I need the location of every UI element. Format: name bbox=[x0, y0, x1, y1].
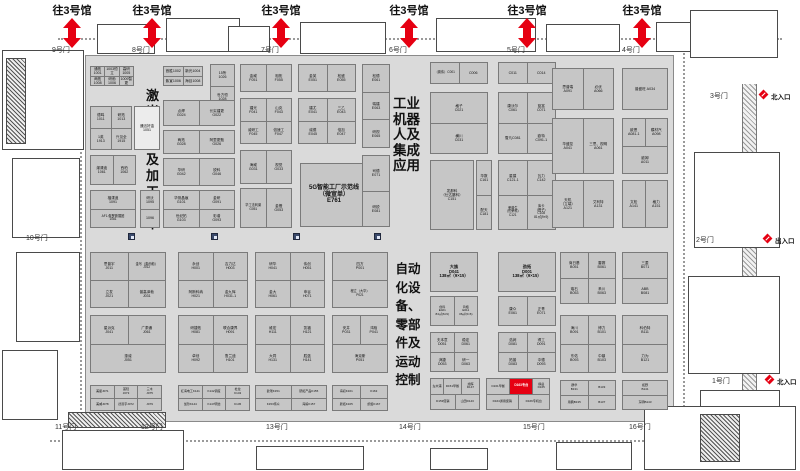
booth-cell: 欧特 C091-1 bbox=[528, 124, 556, 154]
booth-cell: 普盛旺 A034 bbox=[623, 69, 667, 109]
booth-cell: 三木 J075 bbox=[138, 386, 161, 398]
to-hall3-label: 往3号馆 bbox=[616, 2, 668, 18]
booth-cell: 1009智更 bbox=[120, 77, 133, 86]
gate-label: 13号门 bbox=[266, 422, 288, 432]
booth-cell: 两拓1008 bbox=[91, 77, 104, 86]
gate-label: 16号门 bbox=[629, 422, 651, 432]
booth-cell: 大族 D041 138㎡（9×15） bbox=[431, 253, 477, 291]
to-hall3-arrow-icon bbox=[400, 18, 418, 48]
booth-block: 镭光 F041山克 F043诚研工 F045倍速工 F047 bbox=[240, 98, 292, 144]
booth-cell: 群华 B131 bbox=[561, 381, 588, 395]
building bbox=[16, 252, 80, 342]
booth-block: 三菱 B071ABB B081 bbox=[622, 252, 668, 304]
booth-block: 研捷拓 H081联合康界 H091卓划 H092鲁兰迪 H101 bbox=[178, 315, 248, 373]
booth-cell: 拓普 D083 bbox=[499, 353, 527, 372]
booth-cell: 新光1004 bbox=[184, 67, 203, 76]
booth-cell: 紫宣1006 bbox=[164, 77, 183, 86]
booth-cell: 模材汽 A098 bbox=[646, 119, 668, 146]
gate-label: 1号门 bbox=[712, 376, 730, 386]
building bbox=[300, 22, 386, 54]
booth-cell: 库卡 （橙子） C108 81㎡(9×9) bbox=[528, 196, 556, 230]
booth-block: 永创 H001吉力达 H003阿斯科纳 H021金九辉 H031-1 bbox=[178, 252, 248, 308]
booth-cell: 煤清迪 1061 bbox=[91, 156, 113, 184]
booth-block: 点焊 G024长实镭更 G022 bbox=[163, 100, 235, 126]
booth-cell: 通拓1001 bbox=[91, 67, 104, 76]
booth-cell: 夫本意 D051 bbox=[431, 333, 454, 352]
booth-cell: 相拓 F055 bbox=[267, 65, 292, 91]
booth-cell: 1003恒立 bbox=[105, 67, 118, 76]
marker-dot bbox=[296, 236, 299, 239]
gate-label: 2号门 bbox=[696, 235, 714, 245]
booth-block: 华测晶痕 G101金研 G091世纪拓 G103彩谱 G093 bbox=[163, 190, 235, 228]
booth-block: 康众 E061正青 E071 bbox=[498, 296, 556, 326]
booth-block: 研沃 10951096 bbox=[140, 190, 160, 228]
booth-cell: 华盛控 A041 bbox=[553, 119, 583, 173]
marker-dot bbox=[131, 236, 134, 239]
booth-cell: 首胜1002 bbox=[164, 67, 183, 76]
building bbox=[2, 350, 58, 420]
booth-cell: 伟创 H051 bbox=[291, 253, 325, 280]
booth-block: 德鸣 1011研拓 10131英 1913兴见全 1915 bbox=[90, 106, 132, 150]
building bbox=[6, 58, 26, 144]
booth-cell: 惠诚 J051 bbox=[91, 345, 165, 373]
gate-label: 3号门 bbox=[710, 91, 728, 101]
gate-label: 5号门 bbox=[507, 45, 525, 55]
booth-block: 夫本意 D051稳定 D061湃捷 D053研一 D063 bbox=[430, 332, 478, 372]
booth-cell: 鸿栢 P041 bbox=[361, 316, 388, 344]
booth-cell: 东明B143 bbox=[623, 396, 667, 410]
booth-block: 四方 P001程立（大华） P021 bbox=[332, 252, 388, 308]
booth-cell: 松德 E061 bbox=[363, 65, 389, 92]
booth-cell: 彩谱 G093 bbox=[200, 210, 235, 228]
section-title-automation: 自动化设备、零部件及运动控制 bbox=[394, 260, 422, 390]
booth-cell: 浩润 D081 bbox=[499, 333, 527, 352]
marker-dot bbox=[214, 236, 217, 239]
entrance-diamond-icon bbox=[765, 375, 775, 385]
booth-cell: 安井 P031 bbox=[333, 316, 360, 344]
building bbox=[256, 446, 364, 470]
section-title-robots: 工业机器人及集成应用 bbox=[391, 96, 422, 174]
right-corridor-wall bbox=[683, 42, 685, 442]
booth-cell: 旭辉 D147 bbox=[462, 379, 479, 394]
booth-cell: 诚德 E045 bbox=[299, 122, 327, 144]
booth-block: 海初K161K163默拓K165凯旋K167 bbox=[332, 385, 388, 411]
booth-cell: 雷赛 B061 bbox=[589, 253, 616, 278]
booth-cell: 欧姆 A011 bbox=[623, 147, 667, 174]
booth-cell: 普高泽勃 J031 bbox=[129, 281, 166, 308]
booth-block: 商日基 B051雷赛 B061珞石 B053禾川 B063 bbox=[560, 252, 616, 304]
to-hall3-arrow-icon bbox=[518, 18, 536, 48]
booth-cell: J079 bbox=[138, 399, 161, 411]
booth-cell: 中德 D093 bbox=[528, 353, 556, 372]
booth-cell: 必优 A066 bbox=[584, 69, 614, 109]
booth-cell: 金大 H061 bbox=[256, 281, 290, 308]
booth-cell: 横川 C031 bbox=[431, 124, 487, 154]
booth-block: 华盛控 A041三思、视明 A061 bbox=[552, 118, 614, 174]
booth-cell: K142调度 bbox=[203, 386, 226, 398]
booth-cell: K145 bbox=[226, 399, 249, 411]
booth-cell: 星派克 J041 bbox=[91, 316, 128, 344]
booth-cell: 联合康界 H091 bbox=[214, 316, 248, 344]
booth-cell: 劲拓 D001 138㎡（9×15） bbox=[499, 253, 555, 291]
booth-cell: 鸿栢 E011 36㎡(6×6) bbox=[455, 297, 478, 325]
booth-cell: 爱普生 （长荣科） C121 bbox=[499, 196, 527, 230]
booth-cell: 加玲K144 bbox=[179, 399, 202, 411]
gate-label: 14号门 bbox=[399, 422, 421, 432]
booth-block: D161早餐D163专台横岳 D165D164通用促销D166专机台 bbox=[486, 378, 550, 410]
booth-cell: 兴见全 1915 bbox=[112, 129, 132, 150]
booth-block: 海川 B091博力 B101东佑 B093中鼎 B103 bbox=[560, 315, 616, 373]
booth-cell: 海目1008 bbox=[184, 77, 203, 86]
booth-block: 通拓10011003恒立高研1005两拓1008研勃10061009智更 bbox=[90, 66, 134, 86]
booth-cell: 得工 D091 bbox=[528, 333, 556, 352]
booth-cell: 金英 E051 bbox=[299, 65, 327, 91]
booth-cell: K153伟众 bbox=[256, 399, 291, 411]
booth-cell: 康沃尔 C061 bbox=[499, 93, 527, 123]
booth-cell: 司德 E071 bbox=[363, 156, 389, 191]
booth-cell: 研沃 1095 bbox=[141, 191, 159, 209]
to-hall3-label: 往3号馆 bbox=[126, 2, 178, 18]
booth-cell: ABB B081 bbox=[623, 279, 667, 304]
booth-cell: 横岳 D165 bbox=[533, 379, 549, 394]
booth-cell: 金橙 G053 bbox=[267, 189, 292, 227]
booth-cell: 研勃1006 bbox=[105, 77, 118, 86]
booth-cell: C014 bbox=[528, 63, 556, 83]
booth-block: 文松 A141格力 A151 bbox=[622, 180, 668, 228]
booth-block: 康沃尔 C061蓝富 C071雪凡C081欧特 C091-1 bbox=[498, 92, 556, 154]
booth-block: 镭尤 E041三乙 E043诚德 E045倍加 E047 bbox=[298, 98, 356, 144]
booth-cell: 广泰通 J061 bbox=[129, 316, 166, 344]
booth-cell: 左木浦 bbox=[431, 379, 443, 394]
booth-cell: 力为 B121 bbox=[623, 345, 667, 373]
booth-cell: 阿里更甄 G026 bbox=[200, 131, 235, 153]
booth-cell: 通迅好金 1051 bbox=[135, 107, 159, 149]
booth-cell: 金写（泰丙勃） J012 bbox=[129, 253, 166, 280]
booth-cell: 凯旋K167 bbox=[361, 399, 388, 411]
booth-cell: 华研 G042 bbox=[164, 159, 199, 185]
to-hall3-arrow-icon bbox=[143, 18, 161, 48]
booth-cell: 福漾迪 1091 bbox=[91, 191, 135, 209]
booth-cell: 拓野 B141 bbox=[623, 381, 667, 395]
booth-block: 浩润 D081得工 D091拓普 D083中德 D093 bbox=[498, 332, 556, 372]
booth-cell: 视觉 G033 bbox=[267, 151, 292, 183]
booth-cell: 美星J071 bbox=[91, 386, 114, 398]
booth-cell: 华工法利莱 G051 bbox=[241, 189, 266, 227]
booth-cell: 华测晶痕 G101 bbox=[164, 191, 199, 209]
booth-block: 拓野 B141东明B143 bbox=[622, 380, 668, 410]
booth-cell: D161早餐 bbox=[487, 379, 509, 394]
booth-cell: D151早餐 bbox=[444, 379, 461, 394]
booth-cell: 研拓产品K155 bbox=[292, 386, 327, 398]
booth-cell: 维宏 H111 bbox=[256, 316, 290, 344]
booth-cell: 凯福 H121 bbox=[291, 316, 325, 344]
booth-block: 左木浦D151早餐旭辉 D147D153促销山田D143 bbox=[430, 378, 480, 410]
booth-block: 红海电工K141K142调度杜拉 K143加玲K144K147明治K145 bbox=[178, 385, 250, 411]
booth-cell: D163专台 bbox=[510, 379, 532, 394]
booth-cell: 两拓 G028 bbox=[164, 131, 199, 153]
gate-label: 11号门 bbox=[55, 422, 76, 432]
booth-cell: 15所 1026 bbox=[211, 65, 234, 86]
booth-block: 福漾迪 1091AF1.俄罗斯展团 1081 bbox=[90, 190, 136, 228]
booth-cell: C006 bbox=[460, 63, 488, 83]
booth-block: 天机 （立端） A121艾利特 A131 bbox=[552, 180, 614, 228]
aisle-info-marker bbox=[211, 233, 218, 240]
gate-label: 12号门 bbox=[141, 422, 163, 432]
booth-cell: 文松 A141 bbox=[623, 181, 645, 227]
booth-block: 研华 H041伟创 H051金大 H061申谷 H071 bbox=[255, 252, 325, 308]
booth-cell: 杜拉 K143 bbox=[226, 386, 249, 398]
booth-cell: 点焊 G024 bbox=[164, 101, 199, 125]
gate-label: 7号门 bbox=[261, 45, 279, 55]
booth-cell: 默拓K165 bbox=[333, 399, 360, 411]
booth-cell: 创科 E021 84㎡(6×9) bbox=[431, 297, 454, 325]
exhibition-floor-plan: 激光设备及加工技术 工业机器人及集成应用 自动化设备、零部件及运动控制 通拓10… bbox=[0, 0, 800, 471]
booth-cell: 中鼎 B103 bbox=[589, 345, 616, 373]
booth-block: （置伟）C001C006 bbox=[430, 62, 488, 84]
gate-label: 15号门 bbox=[523, 422, 545, 432]
booth-cell: 四方 P001 bbox=[333, 253, 387, 280]
booth-cell: 世纪拓 G103 bbox=[164, 210, 199, 228]
diamond-slit bbox=[765, 236, 769, 240]
booth-cell: 诚研工 F045 bbox=[241, 122, 266, 144]
booth-block: 创科 E021 84㎡(6×9)鸿栢 E011 36㎡(6×6) bbox=[430, 296, 478, 326]
building bbox=[546, 24, 620, 52]
booth-cell: 博力 B101 bbox=[589, 316, 616, 344]
booth-block: 5G智能工厂示范线 （微宣单） E761 bbox=[300, 163, 368, 227]
booth-block: 华研 G042锐科 G046 bbox=[163, 158, 235, 186]
booth-cell: 倍加 E047 bbox=[328, 122, 356, 144]
booth-cell: 配天 C181 bbox=[477, 196, 491, 230]
booth-cell: 蓝富 C071 bbox=[528, 93, 556, 123]
booth-cell: 研拓 1013 bbox=[112, 107, 132, 128]
gate-label: 8号门 bbox=[132, 45, 150, 55]
booth-block: 安井 P031鸿栢 P041海克斯 P051 bbox=[332, 315, 388, 373]
aisle-info-marker bbox=[128, 233, 135, 240]
entrance-label: 北入口 bbox=[777, 376, 797, 386]
booth-cell: 欧恩 A081-1 bbox=[623, 119, 645, 146]
to-hall3-label: 往3号馆 bbox=[255, 2, 307, 18]
booth-cell: 金九辉 H031-1 bbox=[214, 281, 248, 308]
booth-cell: 思普宇 J011 bbox=[91, 253, 128, 280]
booth-cell: 鲁兰迪 H101 bbox=[214, 345, 248, 373]
booth-cell: 海初K161 bbox=[333, 386, 360, 398]
booth-cell: 思普端 A091 bbox=[553, 69, 583, 109]
entrance-diamond-icon bbox=[759, 90, 769, 100]
booth-block: 思普宇 J011金写（泰丙勃） J012立发 J021普高泽勃 J031 bbox=[90, 252, 166, 308]
booth-cell: K163 bbox=[361, 386, 388, 398]
booth-cell: 金威 F051 bbox=[241, 65, 266, 91]
aisle-info-marker bbox=[374, 233, 381, 240]
booth-block: 科伯特 B111力为 B121 bbox=[622, 315, 668, 373]
to-hall3-label: 往3号馆 bbox=[501, 2, 553, 18]
booth-cell: 山田D143 bbox=[456, 395, 480, 410]
building bbox=[556, 442, 632, 470]
booth-cell: 雪凡C081 bbox=[499, 124, 527, 154]
booth-cell: 湃捷 D053 bbox=[431, 353, 454, 372]
booth-block: 松德 E061瑞镭 E063研视 E065 bbox=[362, 64, 390, 148]
booth-cell: 研华 H041 bbox=[256, 253, 290, 280]
booth-cell: 海克斯 P051 bbox=[333, 345, 387, 373]
booth-cell: 天机 （立端） A121 bbox=[553, 181, 583, 227]
booth-cell: 德曼宇J072 bbox=[115, 399, 138, 411]
booth-block: 普盛旺 A034 bbox=[622, 68, 668, 110]
booth-cell: D164通用促销 bbox=[487, 395, 518, 410]
to-hall3-label: 往3号馆 bbox=[46, 2, 98, 18]
booth-cell: 5G智能工厂示范线 （微宣单） E761 bbox=[301, 164, 367, 226]
booth-cell: 欧瑞K151 bbox=[256, 386, 291, 398]
booth-cell: 发那科 （仕达屡科） C151 bbox=[431, 161, 473, 229]
booth-cell: 商日基 B051 bbox=[561, 253, 588, 278]
booth-cell: 艾利特 A131 bbox=[584, 181, 614, 227]
booth-block: 华数 C161配天 C181 bbox=[476, 160, 492, 230]
booth-cell: 吉力达 H003 bbox=[214, 253, 248, 280]
booth-cell: 1096 bbox=[141, 210, 159, 228]
building bbox=[62, 430, 184, 470]
entrance-label: 北入口 bbox=[771, 91, 791, 101]
booth-cell: （置伟）C001 bbox=[431, 63, 459, 83]
booth-cell: 高研1005 bbox=[120, 67, 133, 76]
booth-cell: 长实镭更 G022 bbox=[200, 101, 235, 125]
booth-cell: 瓦力 C142 bbox=[528, 161, 556, 195]
booth-block: 两拓 G028阿里更甄 G026 bbox=[163, 130, 235, 154]
booth-cell: 三思、视明 A061 bbox=[584, 119, 614, 173]
booth-cell: 程立（大华） P021 bbox=[333, 281, 387, 308]
booth-cell: 德鸣 1011 bbox=[91, 107, 111, 128]
to-hall3-arrow-icon bbox=[633, 18, 651, 48]
booth-block: 美星J071首轻 J073三木 J075美威J078德曼宇J072J079 bbox=[90, 385, 162, 411]
booth-cell: 研锐 E081 bbox=[363, 192, 389, 227]
booth-cell: 华数 C161 bbox=[477, 161, 491, 195]
building bbox=[430, 448, 488, 470]
booth-cell: 阿斯科纳 H021 bbox=[179, 281, 213, 308]
building bbox=[690, 10, 778, 58]
to-hall3-arrow-icon bbox=[63, 18, 81, 48]
booth-cell: D153促销 bbox=[431, 395, 455, 410]
booth-cell: 珞石 B053 bbox=[561, 279, 588, 304]
marker-dot bbox=[377, 236, 380, 239]
booth-cell: 康众 E061 bbox=[499, 297, 527, 325]
booth-cell: 海威 G031 bbox=[241, 151, 266, 183]
booth-block: 群华 B131B133用典B135B137 bbox=[560, 380, 616, 410]
booth-block: 维宏 H111凯福 H121大同 H131胜蓝 H141 bbox=[255, 315, 325, 373]
booth-cell: 永创 H001 bbox=[179, 253, 213, 280]
to-hall3-label: 往3号馆 bbox=[383, 2, 435, 18]
booth-cell: 用典B135 bbox=[561, 396, 588, 410]
booth-cell: 大同 H131 bbox=[256, 345, 290, 373]
aisle-info-marker bbox=[293, 233, 300, 240]
booth-block: 海威 G031视觉 G033 bbox=[240, 150, 292, 184]
booth-block: 通迅好金 1051 bbox=[134, 106, 160, 150]
booth-cell: 美威J078 bbox=[91, 399, 114, 411]
booth-cell: 镭光 F041 bbox=[241, 99, 266, 121]
building bbox=[12, 158, 80, 238]
booth-block: 司德 E071研锐 E081 bbox=[362, 155, 390, 227]
booth-cell: 胜蓝 H141 bbox=[291, 345, 325, 373]
booth-cell: 立发 J021 bbox=[91, 281, 128, 308]
booth-cell: 研一 D063 bbox=[455, 353, 478, 372]
booth-cell: 三菱 B071 bbox=[623, 253, 667, 278]
booth-cell: C011 bbox=[499, 63, 527, 83]
booth-block: 金英 E051松盛 E055 bbox=[298, 64, 356, 92]
booth-cell: 山克 F043 bbox=[267, 99, 292, 121]
booth-cell: 三乙 E043 bbox=[328, 99, 356, 121]
diamond-slit bbox=[767, 377, 771, 381]
booth-cell: 瑞镭 E063 bbox=[363, 93, 389, 120]
booth-cell: 稳定 D061 bbox=[455, 333, 478, 352]
booth-cell: K147明治 bbox=[203, 399, 226, 411]
gate-label: 10号门 bbox=[26, 233, 48, 243]
booth-cell: 科伯特 B111 bbox=[623, 316, 667, 344]
booth-cell: 东佑 B093 bbox=[561, 345, 588, 373]
booth-cell: 申谷 H071 bbox=[291, 281, 325, 308]
booth-block: 金威 F051相拓 F055 bbox=[240, 64, 292, 92]
booth-cell: 锐科 G046 bbox=[200, 159, 235, 185]
booth-cell: AF1.俄罗斯展团 1081 bbox=[91, 210, 135, 228]
building bbox=[700, 414, 740, 462]
booth-block: 首胜1002新光1004紫宣1006海目1008 bbox=[163, 66, 203, 86]
to-hall3-arrow-icon bbox=[272, 18, 290, 48]
booth-block: 欧瑞K151研拓产品K155K153伟众海毅K157 bbox=[255, 385, 327, 411]
booth-cell: 卓划 H092 bbox=[179, 345, 213, 373]
booth-cell: 首轻 J073 bbox=[115, 386, 138, 398]
booth-cell: 正青 E071 bbox=[528, 297, 556, 325]
diamond-slit bbox=[761, 92, 765, 96]
booth-cell: 金研 G091 bbox=[200, 191, 235, 209]
booth-cell: 镭尤 E041 bbox=[299, 99, 327, 121]
booth-block: C011C014 bbox=[498, 62, 556, 84]
booth-cell: 海川 B091 bbox=[561, 316, 588, 344]
booth-cell: 倍速工 F047 bbox=[267, 122, 292, 144]
booth-cell: B137 bbox=[589, 396, 616, 410]
building bbox=[688, 276, 780, 374]
booth-cell: D166专机台 bbox=[519, 395, 550, 410]
booth-block: 煤清迪 1061西柏 1062 bbox=[90, 155, 136, 185]
booth-block: 星猿 C121-1瓦力 C142爱普生 （长荣科） C121库卡 （橙子） C1… bbox=[498, 160, 556, 230]
booth-block: 发那科 （仕达屡科） C151 bbox=[430, 160, 474, 230]
booth-cell: 格力 A151 bbox=[646, 181, 668, 227]
gate-label: 6号门 bbox=[389, 45, 407, 55]
booth-cell: 星猿 C121-1 bbox=[499, 161, 527, 195]
gate-label: 9号门 bbox=[52, 45, 70, 55]
entrance-label: 出入口 bbox=[775, 235, 795, 245]
booth-cell: 海毅K157 bbox=[292, 399, 327, 411]
booth-block: 劲拓 D001 138㎡（9×15） bbox=[498, 252, 556, 292]
booth-cell: 研捷拓 H081 bbox=[179, 316, 213, 344]
booth-cell: 西柏 1062 bbox=[114, 156, 136, 184]
booth-block: 思普端 A091必优 A066 bbox=[552, 68, 614, 110]
booth-cell: B133 bbox=[589, 381, 616, 395]
gate-label: 4号门 bbox=[622, 45, 640, 55]
booth-cell: 1英 1913 bbox=[91, 129, 111, 150]
booth-cell: 禾川 B063 bbox=[589, 279, 616, 304]
booth-block: 星派克 J041广泰通 J061惠诚 J051 bbox=[90, 315, 166, 373]
booth-block: 华工法利莱 G051金橙 G053 bbox=[240, 188, 292, 228]
booth-block: 格子 C021横川 C031 bbox=[430, 92, 488, 154]
booth-cell: 格子 C021 bbox=[431, 93, 487, 123]
booth-cell: 红海电工K141 bbox=[179, 386, 202, 398]
booth-cell: 松盛 E055 bbox=[328, 65, 356, 91]
booth-block: 大族 D041 138㎡（9×15） bbox=[430, 252, 478, 292]
booth-block: 欧恩 A081-1模材汽 A098欧姆 A011 bbox=[622, 118, 668, 174]
booth-cell: 研视 E065 bbox=[363, 120, 389, 147]
